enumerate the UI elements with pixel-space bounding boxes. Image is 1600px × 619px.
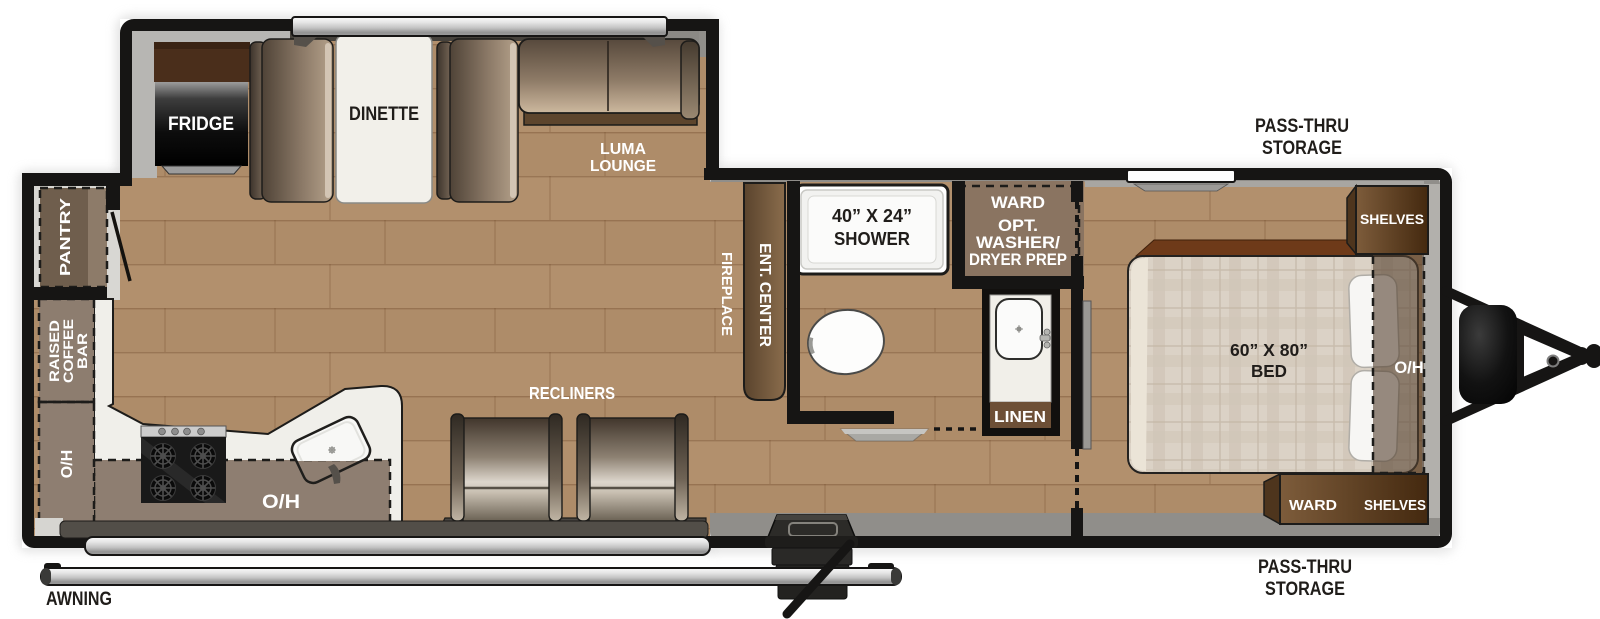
svg-text:LINEN: LINEN <box>994 409 1046 426</box>
svg-text:SHOWER: SHOWER <box>834 228 910 249</box>
svg-text:O/H: O/H <box>59 450 76 478</box>
svg-text:DRYER PREP: DRYER PREP <box>969 250 1067 269</box>
svg-text:RAISED: RAISED <box>47 320 62 382</box>
svg-text:FRIDGE: FRIDGE <box>168 114 234 135</box>
svg-text:COFFEE: COFFEE <box>61 319 76 383</box>
svg-text:AWNING: AWNING <box>46 589 112 610</box>
svg-text:DINETTE: DINETTE <box>349 104 419 125</box>
svg-text:BAR: BAR <box>75 333 90 369</box>
svg-text:FIREPLACE: FIREPLACE <box>718 252 735 336</box>
svg-text:WARD: WARD <box>991 193 1045 212</box>
svg-text:STORAGE: STORAGE <box>1265 579 1345 600</box>
svg-text:PASS-THRU: PASS-THRU <box>1258 557 1352 578</box>
svg-text:WARD: WARD <box>1289 498 1337 514</box>
svg-text:LOUNGE: LOUNGE <box>590 158 656 175</box>
svg-text:PANTRY: PANTRY <box>57 198 74 276</box>
svg-text:LUMA: LUMA <box>600 141 646 158</box>
svg-text:RECLINERS: RECLINERS <box>529 383 615 403</box>
svg-text:SHELVES: SHELVES <box>1364 498 1426 514</box>
svg-text:ENT. CENTER: ENT. CENTER <box>756 243 773 347</box>
svg-text:O/H: O/H <box>262 492 300 513</box>
svg-text:60” X 80”: 60” X 80” <box>1230 340 1308 360</box>
svg-text:STORAGE: STORAGE <box>1262 138 1342 159</box>
svg-text:40” X 24”: 40” X 24” <box>832 205 912 226</box>
svg-text:PASS-THRU: PASS-THRU <box>1255 116 1349 137</box>
svg-text:BED: BED <box>1251 361 1287 381</box>
svg-text:SHELVES: SHELVES <box>1360 211 1424 227</box>
svg-text:O/H: O/H <box>1394 359 1423 377</box>
